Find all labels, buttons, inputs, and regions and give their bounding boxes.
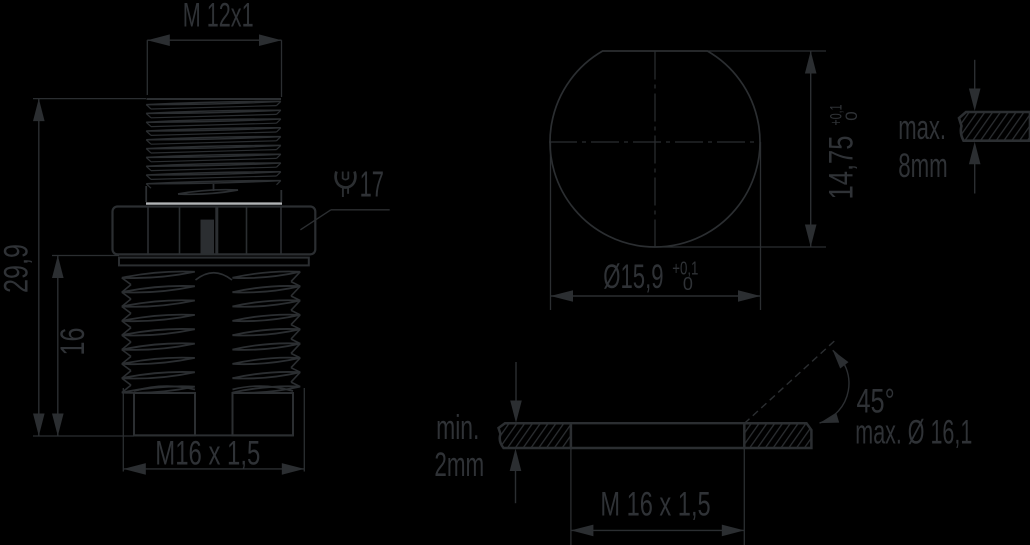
svg-text:16: 16	[54, 328, 92, 356]
svg-text:2mm: 2mm	[434, 446, 484, 484]
svg-text:M16 x 1,5: M16 x 1,5	[155, 435, 260, 473]
svg-text:Ø15,9: Ø15,9	[603, 258, 663, 296]
svg-text:M 12x1: M 12x1	[183, 0, 254, 35]
svg-text:29,9: 29,9	[0, 244, 36, 293]
svg-text:14,75: 14,75	[823, 136, 861, 200]
svg-text:M 16 x 1,5: M 16 x 1,5	[600, 485, 710, 523]
svg-text:8mm: 8mm	[898, 147, 948, 185]
svg-text:17: 17	[360, 164, 384, 205]
svg-text:0: 0	[842, 111, 861, 120]
svg-text:0: 0	[683, 274, 693, 294]
svg-text:max. Ø 16,1: max. Ø 16,1	[855, 414, 972, 452]
svg-text:min.: min.	[436, 409, 479, 447]
svg-text:max.: max.	[898, 109, 946, 147]
